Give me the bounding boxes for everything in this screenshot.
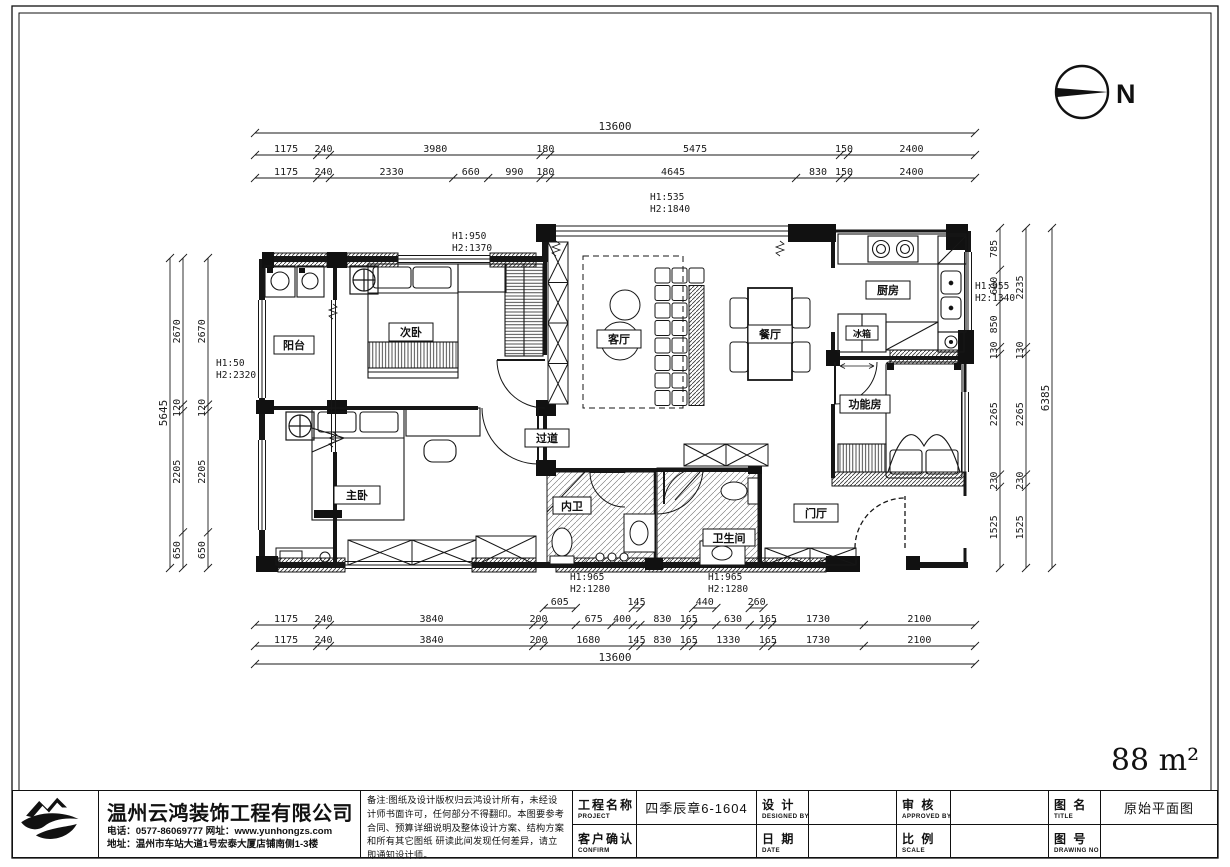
- room-label-foyer: 门厅: [794, 504, 838, 522]
- drawing-sheet: 阳台 次卧 客厅 餐厅 厨房 冰箱 功能房 主卧 过道 内卫 卫生间 门厅 H1…: [0, 0, 1230, 867]
- room-label-dining: 餐厅: [748, 325, 792, 343]
- dim-label: 5645: [157, 400, 170, 427]
- height-note: H2:1280: [570, 584, 610, 595]
- svg-text:卫生间: 卫生间: [713, 531, 746, 545]
- height-note: H2:1370: [452, 243, 492, 254]
- dim-label: 240: [315, 167, 333, 178]
- living-sofa: [655, 268, 704, 406]
- dim-label: 260: [748, 597, 766, 608]
- date-value: [809, 825, 897, 858]
- company-logo: [13, 791, 99, 857]
- dim-label: 180: [536, 167, 554, 178]
- room-label-corridor: 过道: [525, 429, 569, 447]
- height-note: H1:965: [708, 572, 742, 583]
- svg-text:内卫: 内卫: [561, 499, 583, 513]
- dim-label: 200: [529, 614, 547, 625]
- room-label-bathroom: 卫生间: [703, 529, 755, 546]
- room-label-kitchen: 厨房: [866, 281, 910, 299]
- dim-label: 180: [536, 144, 554, 155]
- height-note: H1:535: [650, 192, 684, 203]
- dim-label: 660: [462, 167, 480, 178]
- hall-storage-column: [548, 242, 568, 404]
- function-room-bed: [886, 362, 962, 478]
- dim-label: 240: [315, 614, 333, 625]
- dim-label: 3980: [423, 144, 447, 155]
- room-label-function: 功能房: [840, 395, 890, 413]
- room-label-balcony: 阳台: [274, 336, 314, 354]
- dim-label: 240: [315, 144, 333, 155]
- dim-label: 2330: [380, 167, 404, 178]
- dim-label: 240: [315, 635, 333, 646]
- dim-label: 120: [197, 399, 208, 417]
- dim-label: 2100: [907, 635, 931, 646]
- corridor-cabinets: [684, 444, 768, 466]
- height-note: H1:950: [452, 231, 487, 242]
- dim-label: 130: [989, 341, 1000, 359]
- dim-label: 4645: [661, 167, 685, 178]
- design-value: [809, 791, 897, 824]
- dim-label: 600: [989, 277, 1000, 295]
- dim-label: 1525: [989, 515, 1000, 539]
- dim-label: 145: [628, 635, 646, 646]
- living-side-tables: [601, 290, 640, 360]
- drawing-notes: 备注:图纸及设计版权归云鸿设计所有，未经设计师书面许可，任何部分不得翻印。本图要…: [361, 791, 573, 857]
- dim-label: 650: [197, 541, 208, 559]
- confirm-label: 客户确认 CONFIRM: [573, 825, 637, 858]
- bedroom2-bed: [368, 264, 458, 378]
- bedroom2-shelf: [458, 264, 506, 292]
- bedroom2-wardrobe: [505, 264, 543, 356]
- dim-label: 230: [989, 472, 1000, 490]
- drawing-title-value: 原始平面图: [1101, 791, 1217, 824]
- company-logo-icon: [13, 791, 85, 847]
- curtain-symbols: [552, 241, 784, 256]
- dim-label: 605: [551, 597, 569, 608]
- room-label-master: 主卧: [334, 486, 380, 504]
- dim-label: 990: [505, 167, 523, 178]
- svg-text:阳台: 阳台: [283, 338, 305, 352]
- height-note: H2:2320: [216, 370, 256, 381]
- dim-label: 130: [1015, 341, 1026, 359]
- room-label-bedroom2: 次卧: [389, 323, 433, 341]
- north-arrow: N: [1056, 66, 1136, 118]
- dim-label: 5475: [683, 144, 707, 155]
- dim-label: 630: [724, 614, 742, 625]
- dim-label: 830: [809, 167, 827, 178]
- master-radiator: [286, 412, 314, 440]
- drawing-no-label: 图 号 DRAWING NO: [1049, 825, 1101, 858]
- dim-label: 3840: [420, 614, 444, 625]
- title-label: 图 名 TITLE: [1049, 791, 1101, 824]
- function-room-radiator: [838, 444, 886, 472]
- svg-text:过道: 过道: [536, 431, 558, 445]
- project-value: 四季辰章6-1604: [637, 791, 757, 824]
- scale-value: [951, 825, 1049, 858]
- balcony-washer-units: [265, 266, 324, 297]
- master-stool: [424, 440, 456, 462]
- dim-label: 2205: [172, 460, 183, 484]
- confirm-value: [637, 825, 757, 858]
- north-label: N: [1116, 79, 1136, 109]
- dim-label: 2400: [899, 144, 923, 155]
- dim-label: 230: [1015, 472, 1026, 490]
- dim-label: 13600: [598, 120, 631, 133]
- dim-label: 200: [529, 635, 547, 646]
- svg-text:客厅: 客厅: [607, 332, 630, 346]
- dim-label: 165: [680, 614, 698, 625]
- svg-text:厨房: 厨房: [877, 283, 899, 297]
- project-label: 工程名称 PROJECT: [573, 791, 637, 824]
- dim-label: 2400: [899, 167, 923, 178]
- dim-label: 830: [653, 635, 671, 646]
- drawing-no-value: [1101, 825, 1217, 858]
- approve-value: [951, 791, 1049, 824]
- dim-label: 440: [696, 597, 714, 608]
- room-label-inner-bath: 内卫: [553, 497, 591, 514]
- sheet-frame: [12, 6, 1218, 858]
- dim-label: 1175: [274, 167, 298, 178]
- svg-text:冰箱: 冰箱: [853, 328, 871, 339]
- dim-label: 2670: [197, 319, 208, 343]
- floor-plan: 阳台 次卧 客厅 餐厅 厨房 冰箱 功能房 主卧 过道 内卫 卫生间 门厅 H1…: [0, 0, 1230, 867]
- dim-label: 1730: [806, 635, 830, 646]
- dim-label: 145: [628, 597, 646, 608]
- dim-label: 2205: [197, 460, 208, 484]
- dim-label: 13600: [598, 651, 631, 664]
- title-block-grid: 工程名称 PROJECT 四季辰章6-1604 设 计 DESIGNED BY …: [573, 791, 1217, 857]
- height-note: H1:50: [216, 358, 245, 369]
- height-note: H2:1840: [650, 204, 690, 215]
- dim-label: 150: [835, 167, 853, 178]
- svg-text:功能房: 功能房: [849, 397, 882, 411]
- height-note: H2:1280: [708, 584, 748, 595]
- dim-label: 2235: [1015, 275, 1026, 299]
- area-label: 88 m²: [1111, 743, 1199, 778]
- svg-text:次卧: 次卧: [400, 325, 422, 339]
- svg-text:门厅: 门厅: [805, 506, 827, 520]
- dim-label: 675: [585, 614, 603, 625]
- dim-label: 1175: [274, 614, 298, 625]
- dim-label: 830: [653, 614, 671, 625]
- date-label: 日 期 DATE: [757, 825, 809, 858]
- approve-label: 审 核 APPROVED BY: [897, 791, 951, 824]
- dim-label: 2265: [989, 402, 1000, 426]
- dim-label: 3840: [420, 635, 444, 646]
- dim-label: 120: [172, 399, 183, 417]
- entry-door: [855, 496, 905, 548]
- bedroom2-radiator: [350, 266, 378, 294]
- master-desk: [406, 408, 480, 436]
- scale-label: 比 例 SCALE: [897, 825, 951, 858]
- title-block: 温州云鸿装饰工程有限公司 电话：0577-86069777 网址：www.yun…: [12, 790, 1218, 858]
- dim-label: 2100: [907, 614, 931, 625]
- height-note: H1:965: [570, 572, 604, 583]
- dim-label: 1175: [274, 635, 298, 646]
- dim-label: 6385: [1039, 385, 1052, 412]
- company-contact-line1: 电话：0577-86069777 网址：www.yunhongzs.com: [107, 826, 352, 838]
- dim-label: 2265: [1015, 402, 1026, 426]
- dim-label: 165: [759, 614, 777, 625]
- dim-label: 2670: [172, 319, 183, 343]
- balcony-door-track: [329, 300, 337, 452]
- dim-label: 165: [759, 635, 777, 646]
- dim-label: 150: [835, 144, 853, 155]
- dim-label: 165: [680, 635, 698, 646]
- dim-label: 1730: [806, 614, 830, 625]
- room-label-fridge: 冰箱: [846, 326, 878, 340]
- design-label: 设 计 DESIGNED BY: [757, 791, 809, 824]
- company-info: 温州云鸿装饰工程有限公司 电话：0577-86069777 网址：www.yun…: [99, 791, 361, 857]
- dim-label: 850: [989, 315, 1000, 333]
- room-label-living: 客厅: [597, 330, 641, 348]
- company-contact-line2: 地址：温州市车站大道1号宏泰大厦店铺南侧1-3楼: [107, 839, 352, 851]
- dim-label: 1175: [274, 144, 298, 155]
- dim-label: 400: [613, 614, 631, 625]
- svg-text:餐厅: 餐厅: [758, 327, 781, 341]
- dim-label: 650: [172, 541, 183, 559]
- dim-label: 785: [989, 240, 1000, 258]
- dim-label: 1330: [716, 635, 740, 646]
- company-name: 温州云鸿装饰工程有限公司: [107, 797, 352, 826]
- dim-label: 1525: [1015, 515, 1026, 539]
- dim-label: 1680: [576, 635, 600, 646]
- svg-text:主卧: 主卧: [346, 488, 368, 502]
